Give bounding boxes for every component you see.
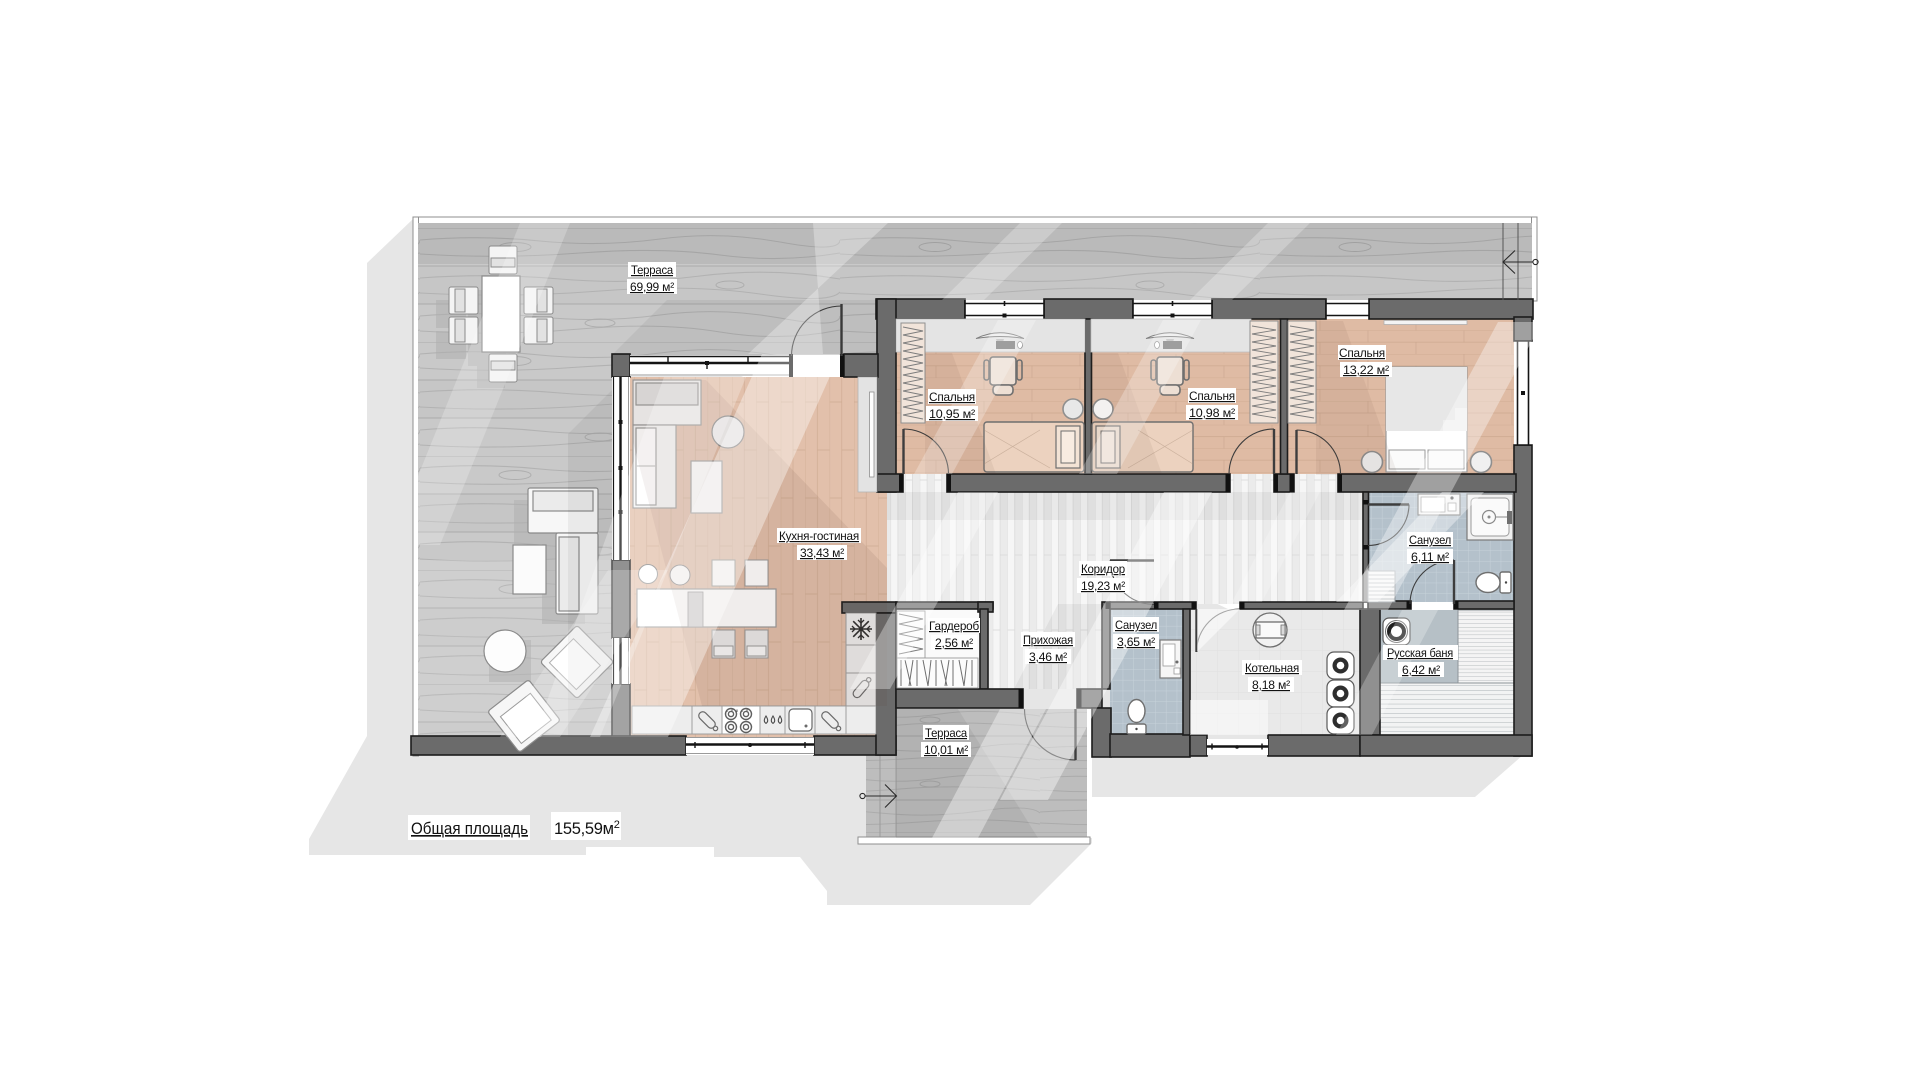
- svg-text:Терраса: Терраса: [631, 263, 673, 277]
- svg-text:Гардероб: Гардероб: [929, 619, 979, 633]
- svg-text:Терраса: Терраса: [925, 726, 967, 740]
- svg-text:3,65 м²: 3,65 м²: [1117, 635, 1155, 649]
- svg-text:10,01 м²: 10,01 м²: [924, 743, 968, 757]
- svg-text:19,23 м²: 19,23 м²: [1081, 579, 1125, 593]
- svg-text:Котельная: Котельная: [1245, 661, 1299, 675]
- svg-text:2,56 м²: 2,56 м²: [935, 636, 973, 650]
- svg-text:Прихожая: Прихожая: [1023, 633, 1073, 647]
- svg-text:8,18 м²: 8,18 м²: [1252, 678, 1290, 692]
- svg-text:Спальня: Спальня: [1189, 389, 1235, 403]
- svg-text:Спальня: Спальня: [1339, 346, 1385, 360]
- svg-text:Санузел: Санузел: [1409, 533, 1451, 547]
- svg-text:3,46 м²: 3,46 м²: [1029, 650, 1067, 664]
- svg-text:6,11 м²: 6,11 м²: [1411, 550, 1449, 564]
- svg-text:6,42 м²: 6,42 м²: [1402, 663, 1440, 677]
- svg-text:Общая площадь: Общая площадь: [411, 820, 528, 838]
- svg-text:33,43 м²: 33,43 м²: [800, 546, 844, 560]
- svg-text:Русская баня: Русская баня: [1387, 646, 1453, 660]
- svg-text:155,59м2: 155,59м2: [554, 819, 620, 838]
- svg-text:Санузел: Санузел: [1115, 618, 1157, 632]
- svg-text:10,95 м²: 10,95 м²: [929, 407, 975, 421]
- svg-text:13,22 м²: 13,22 м²: [1343, 363, 1389, 377]
- svg-text:Коридор: Коридор: [1081, 562, 1125, 576]
- svg-text:Кухня-гостиная: Кухня-гостиная: [779, 529, 859, 543]
- svg-text:Спальня: Спальня: [929, 390, 975, 404]
- svg-text:69,99 м²: 69,99 м²: [630, 280, 674, 294]
- svg-text:10,98 м²: 10,98 м²: [1189, 406, 1235, 420]
